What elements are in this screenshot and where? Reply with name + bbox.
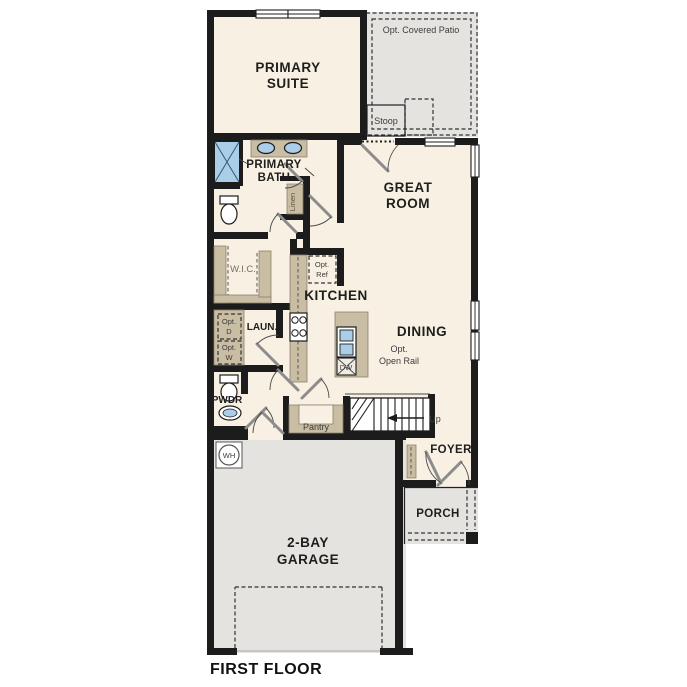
pantry-left-wall — [283, 396, 289, 433]
opt-dryer-label: Opt. — [222, 317, 236, 326]
laundry-top-wall — [207, 303, 297, 310]
opt-open-rail-label-2: Open Rail — [379, 356, 419, 366]
primary-bath-label-2: BATH — [258, 172, 291, 184]
garage-right-wall — [395, 440, 403, 655]
water-heater-label: WH — [223, 451, 236, 460]
vanity-sink-2 — [285, 143, 302, 154]
primary-suite-label: PRIMARY — [255, 60, 320, 75]
dining-label: DINING — [397, 324, 447, 339]
opt-dryer-label-2: D — [226, 327, 232, 336]
opt-open-rail-label: Opt. — [390, 344, 407, 354]
porch-label: PORCH — [416, 508, 460, 520]
powder-bottom-wall — [207, 426, 248, 433]
up-label: Up — [429, 414, 441, 424]
linen-label: Linen — [288, 193, 297, 211]
wic-label: W.I.C. — [230, 264, 256, 275]
suite-right-wall — [360, 17, 367, 133]
shower — [211, 138, 243, 186]
powder-label: PWDR — [212, 395, 243, 406]
stairs — [345, 394, 430, 431]
great-room-label: GREAT — [384, 180, 433, 195]
bath-toilet — [220, 196, 238, 224]
garage-label: 2-BAY — [287, 535, 329, 550]
laundry-bottom-wall — [207, 365, 283, 372]
plan-title: FIRST FLOOR — [210, 661, 322, 678]
wic-shelf-left — [214, 246, 226, 303]
stoop-label: Stoop — [374, 116, 398, 126]
pantry-right-wall — [343, 396, 350, 433]
primary-bath-label: PRIMARY — [246, 159, 301, 171]
great-room-left-wall — [337, 145, 344, 223]
wic-shelf-right — [259, 251, 271, 297]
pantry-label: Pantry — [303, 422, 330, 432]
powder-sink — [219, 406, 241, 420]
fridge-nook-wall — [337, 248, 344, 286]
opt-ref-label: Opt. — [315, 260, 329, 269]
vanity-sink-1 — [258, 143, 275, 154]
opt-ref-label-2: Ref — [316, 270, 329, 279]
stair-bottom-wall — [343, 431, 435, 438]
dishwasher-label: DW — [340, 363, 353, 372]
opt-washer-label: Opt. — [222, 343, 236, 352]
floor-plan-page: PRIMARY SUITE Opt. Covered Patio Stoop P… — [0, 0, 687, 687]
left-outer-wall — [207, 10, 214, 655]
floor-plan-drawing: PRIMARY SUITE Opt. Covered Patio Stoop P… — [0, 0, 687, 687]
great-room-label-2: ROOM — [386, 196, 430, 211]
patio-label: Opt. Covered Patio — [383, 25, 460, 35]
laundry-label: LAUN. — [247, 322, 278, 333]
primary-suite-label-2: SUITE — [267, 76, 309, 91]
porch-post — [466, 532, 478, 544]
range-stove — [290, 313, 307, 341]
foyer-label: FOYER — [430, 444, 472, 456]
opt-washer-label-2: W — [225, 353, 233, 362]
island-sink — [337, 327, 356, 357]
garage-label-2: GARAGE — [277, 552, 339, 567]
kitchen-label: KITCHEN — [304, 288, 368, 303]
